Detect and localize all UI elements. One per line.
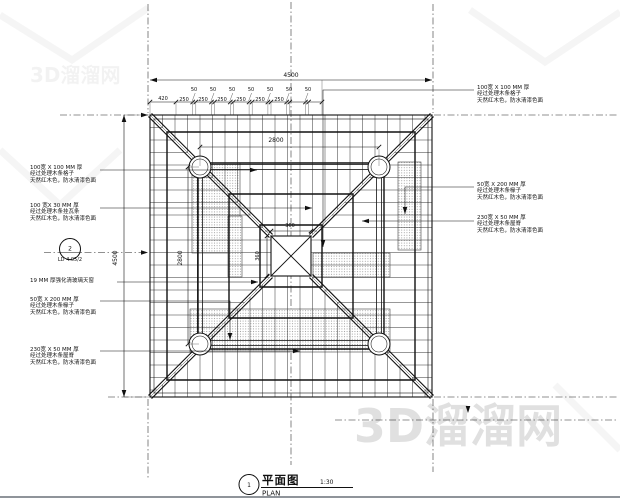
view-number: 1 [247, 482, 251, 489]
callout-left-5: 230宽 X 50 MM 厚 经过处理木条屋脊 天然红木色，防水清漆色面 [30, 347, 96, 366]
dim-gap: 50 [210, 87, 216, 93]
callout-left-1: 100宽 X 100 MM 厚 经过处理木条格子 天然红木色，防水清漆色面 [30, 165, 96, 184]
plan-drawing: 3D溜溜网 4500 4500 [0, 0, 620, 500]
center-post [271, 236, 311, 276]
dim-slat: 250 [217, 97, 227, 103]
view-title: 1 平面图 1:30 PLAN [239, 473, 353, 498]
dim-gap: 50 [229, 87, 235, 93]
callout-finish: 天然红木色，防水清漆色面 [30, 216, 96, 222]
dim-gap: 50 [286, 87, 292, 93]
dim-slat: 250 [274, 97, 284, 103]
callout-right-3: 230宽 X 50 MM 厚 经过处理木条屋脊 天然红木色，防水清漆色面 [477, 215, 543, 234]
callout-right-1: 100宽 X 100 MM 厚 经过处理木条格子 天然红木色，防水清漆色面 [477, 85, 543, 104]
dim-center-height: 360 [255, 251, 261, 261]
callout-size: 19 MM 厚强化清玻璃天窗 [30, 278, 94, 284]
cad-sheet: 3D溜溜网 4500 4500 [0, 0, 620, 500]
watermark-text: 3D溜溜网 [354, 399, 562, 453]
dim-gap: 50 [305, 87, 311, 93]
callout-finish: 天然红木色，防水清漆色面 [30, 178, 96, 184]
dim-gap: 50 [267, 87, 273, 93]
callout-finish: 天然红木色，防水清漆色面 [477, 228, 543, 234]
callout-finish: 天然红木色，防水清漆色面 [30, 310, 96, 316]
detail-bubble: 2 LD 4.05/2 [58, 239, 82, 264]
dim-center-width: 360 [285, 223, 295, 229]
dim-bay-top: 2800 [268, 137, 283, 144]
view-title-cn: 平面图 [262, 473, 300, 487]
callout-left-3: 19 MM 厚强化清玻璃天窗 [30, 278, 94, 284]
dim-gap: 50 [191, 87, 197, 93]
dim-slat: 250 [198, 97, 208, 103]
watermark-text-small: 3D溜溜网 [30, 63, 121, 87]
dim-offset: 420 [158, 96, 168, 102]
dim-overall-left: 4500 [112, 250, 119, 265]
callout-finish: 天然红木色，防水清漆色面 [30, 360, 96, 366]
callout-finish: 天然红木色，防水清漆色面 [477, 98, 543, 104]
view-scale: 1:30 [320, 479, 334, 486]
dim-slat: 250 [179, 97, 189, 103]
detail-bubble-number: 2 [68, 246, 72, 253]
callout-left-4: 50宽 X 200 MM 厚 经过处理木条椽子 天然红木色，防水清漆色面 [30, 297, 96, 316]
callout-right-2: 50宽 X 200 MM 厚 经过处理木条椽子 天然红木色，防水清漆色面 [477, 182, 543, 201]
callout-finish: 天然红木色，防水清漆色面 [477, 195, 543, 201]
dim-gap: 50 [248, 87, 254, 93]
callout-left-2: 100 宽X 30 MM 厚 经过处理木条挂瓦条 天然红木色，防水清漆色面 [30, 203, 96, 222]
dim-overall-top: 4500 [283, 72, 298, 79]
detail-bubble-sheet: LD 4.05/2 [58, 257, 82, 263]
window-border-line [0, 496, 620, 498]
dim-bay-left: 2800 [177, 250, 184, 265]
dim-slat: 250 [236, 97, 246, 103]
dim-slat: 250 [255, 97, 265, 103]
